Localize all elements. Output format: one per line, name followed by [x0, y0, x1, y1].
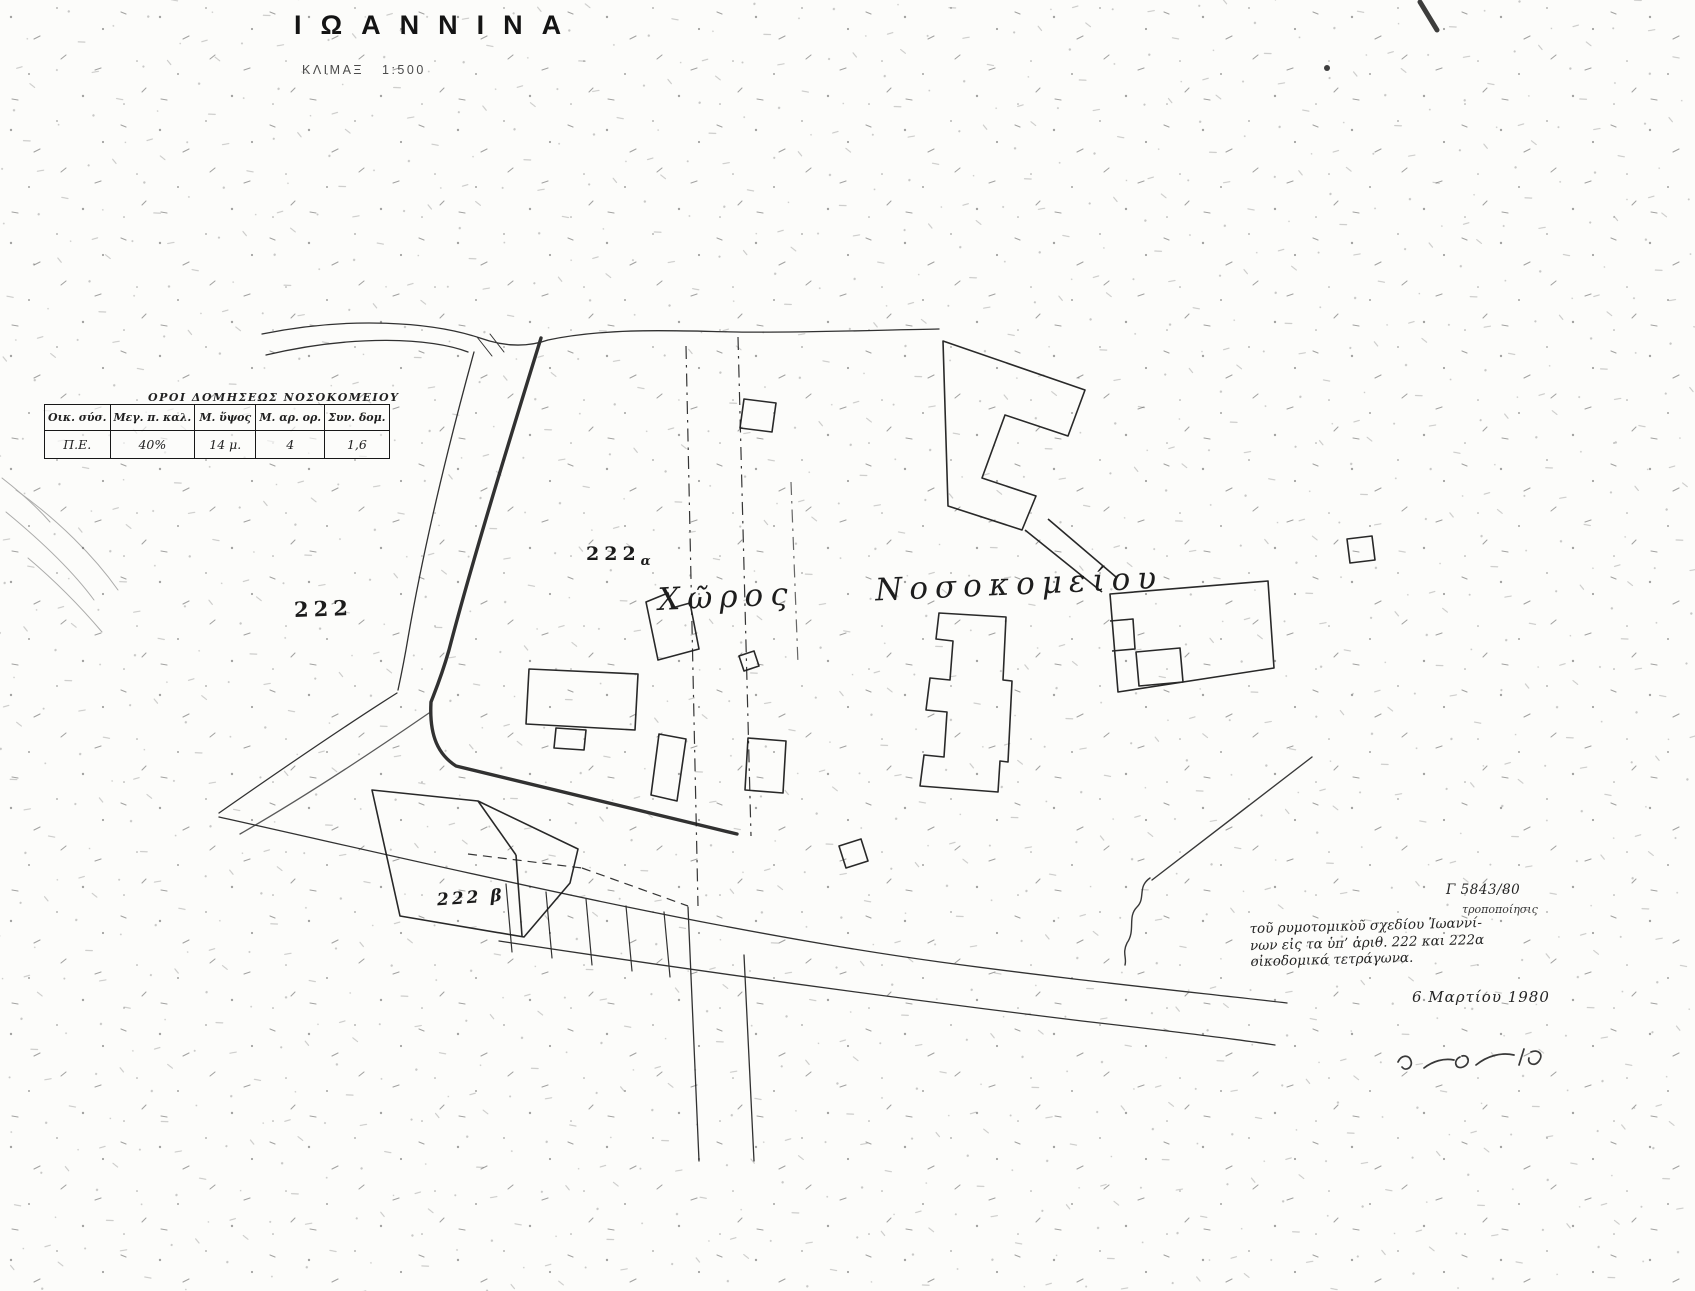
map-title: ΙΩΑΝΝΙΝΑ	[294, 10, 580, 41]
protocol-number: Γ 5843/80	[1446, 882, 1520, 898]
terms-val-system: Π.Ε.	[45, 431, 111, 459]
terms-col-floors: Μ. αρ. ορ.	[256, 405, 325, 431]
annotation-date: 6 Μαρτίου 1980	[1412, 988, 1550, 1006]
terms-val-height: 14 μ.	[195, 431, 256, 459]
block-label-222a-number: 222	[586, 543, 641, 565]
terms-table-title: ΟΡΟΙ ΔΟΜΗΣΕΩΣ ΝΟΣΟΚΟΜΕΙΟΥ	[148, 391, 399, 404]
block-label-222: 222	[294, 595, 354, 622]
terms-col-far: Συν. δομ.	[325, 405, 389, 431]
terms-col-coverage: Μεγ. π. καλ.	[110, 405, 195, 431]
terms-val-far: 1,6	[325, 431, 389, 459]
terms-header-row: Οικ. σύσ. Μεγ. π. καλ. Μ. ὕψος Μ. αρ. ορ…	[45, 405, 390, 431]
ink-blot	[1324, 65, 1330, 71]
block-label-222a-suffix: α	[641, 554, 656, 569]
terms-val-coverage: 40%	[110, 431, 195, 459]
scan-noise-layer-2	[0, 0, 1695, 1291]
terms-values-row: Π.Ε. 40% 14 μ. 4 1,6	[45, 431, 390, 459]
scanned-site-plan-page: ΙΩΑΝΝΙΝΑ ΚΛΙΜΑΞ 1:500 ΟΡΟΙ ΔΟΜΗΣΕΩΣ ΝΟΣΟ…	[0, 0, 1695, 1291]
terms-col-height: Μ. ὕψος	[195, 405, 256, 431]
block-label-222a: 222α	[586, 543, 656, 569]
terms-val-floors: 4	[256, 431, 325, 459]
note-intro-word: τροποποίησις	[1462, 903, 1538, 916]
building-terms-table: Οικ. σύσ. Μεγ. π. καλ. Μ. ὕψος Μ. αρ. ορ…	[44, 404, 390, 459]
amendment-note: τοῦ ρυμοτομικοῦ σχεδίου Ἰωαννί- νων εἰς …	[1249, 915, 1484, 971]
site-plan-drawing	[0, 0, 1695, 1291]
terms-col-system: Οικ. σύσ.	[45, 405, 111, 431]
map-scale-label: ΚΛΙΜΑΞ 1:500	[302, 63, 426, 77]
